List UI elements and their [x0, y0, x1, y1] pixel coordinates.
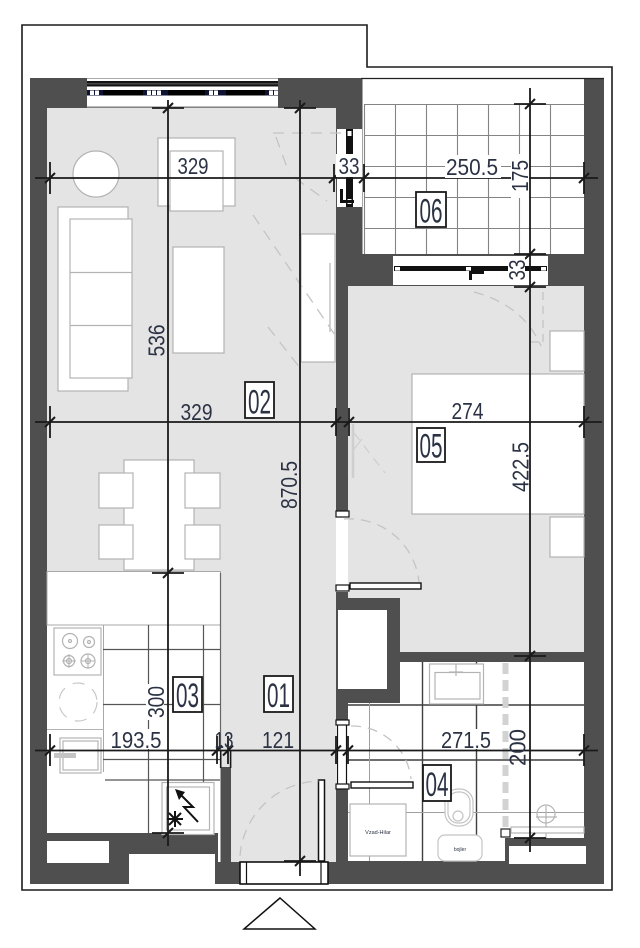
- svg-text:422.5: 422.5: [508, 442, 534, 492]
- svg-text:193.5: 193.5: [111, 727, 162, 753]
- svg-text:121: 121: [262, 727, 294, 753]
- svg-text:536: 536: [144, 325, 170, 357]
- svg-text:271.5: 271.5: [441, 727, 491, 753]
- svg-text:Vzad-Hilar: Vzad-Hilar: [365, 830, 391, 836]
- svg-text:13: 13: [215, 727, 234, 753]
- svg-text:04: 04: [426, 766, 449, 804]
- svg-text:870.5: 870.5: [276, 461, 302, 509]
- svg-text:329: 329: [181, 399, 213, 425]
- svg-text:200: 200: [505, 729, 531, 766]
- svg-text:05: 05: [420, 428, 443, 466]
- svg-text:06: 06: [420, 193, 443, 231]
- svg-text:274: 274: [452, 398, 484, 424]
- svg-text:33: 33: [504, 260, 530, 281]
- svg-text:300: 300: [143, 686, 169, 718]
- svg-text:175: 175: [507, 160, 533, 192]
- svg-text:bojler: bojler: [454, 847, 467, 853]
- svg-text:02: 02: [248, 384, 271, 422]
- svg-text:329: 329: [178, 153, 209, 179]
- svg-text:03: 03: [176, 677, 199, 715]
- svg-text:33: 33: [339, 153, 360, 179]
- svg-text:250.5: 250.5: [446, 154, 498, 180]
- svg-text:01: 01: [267, 677, 290, 715]
